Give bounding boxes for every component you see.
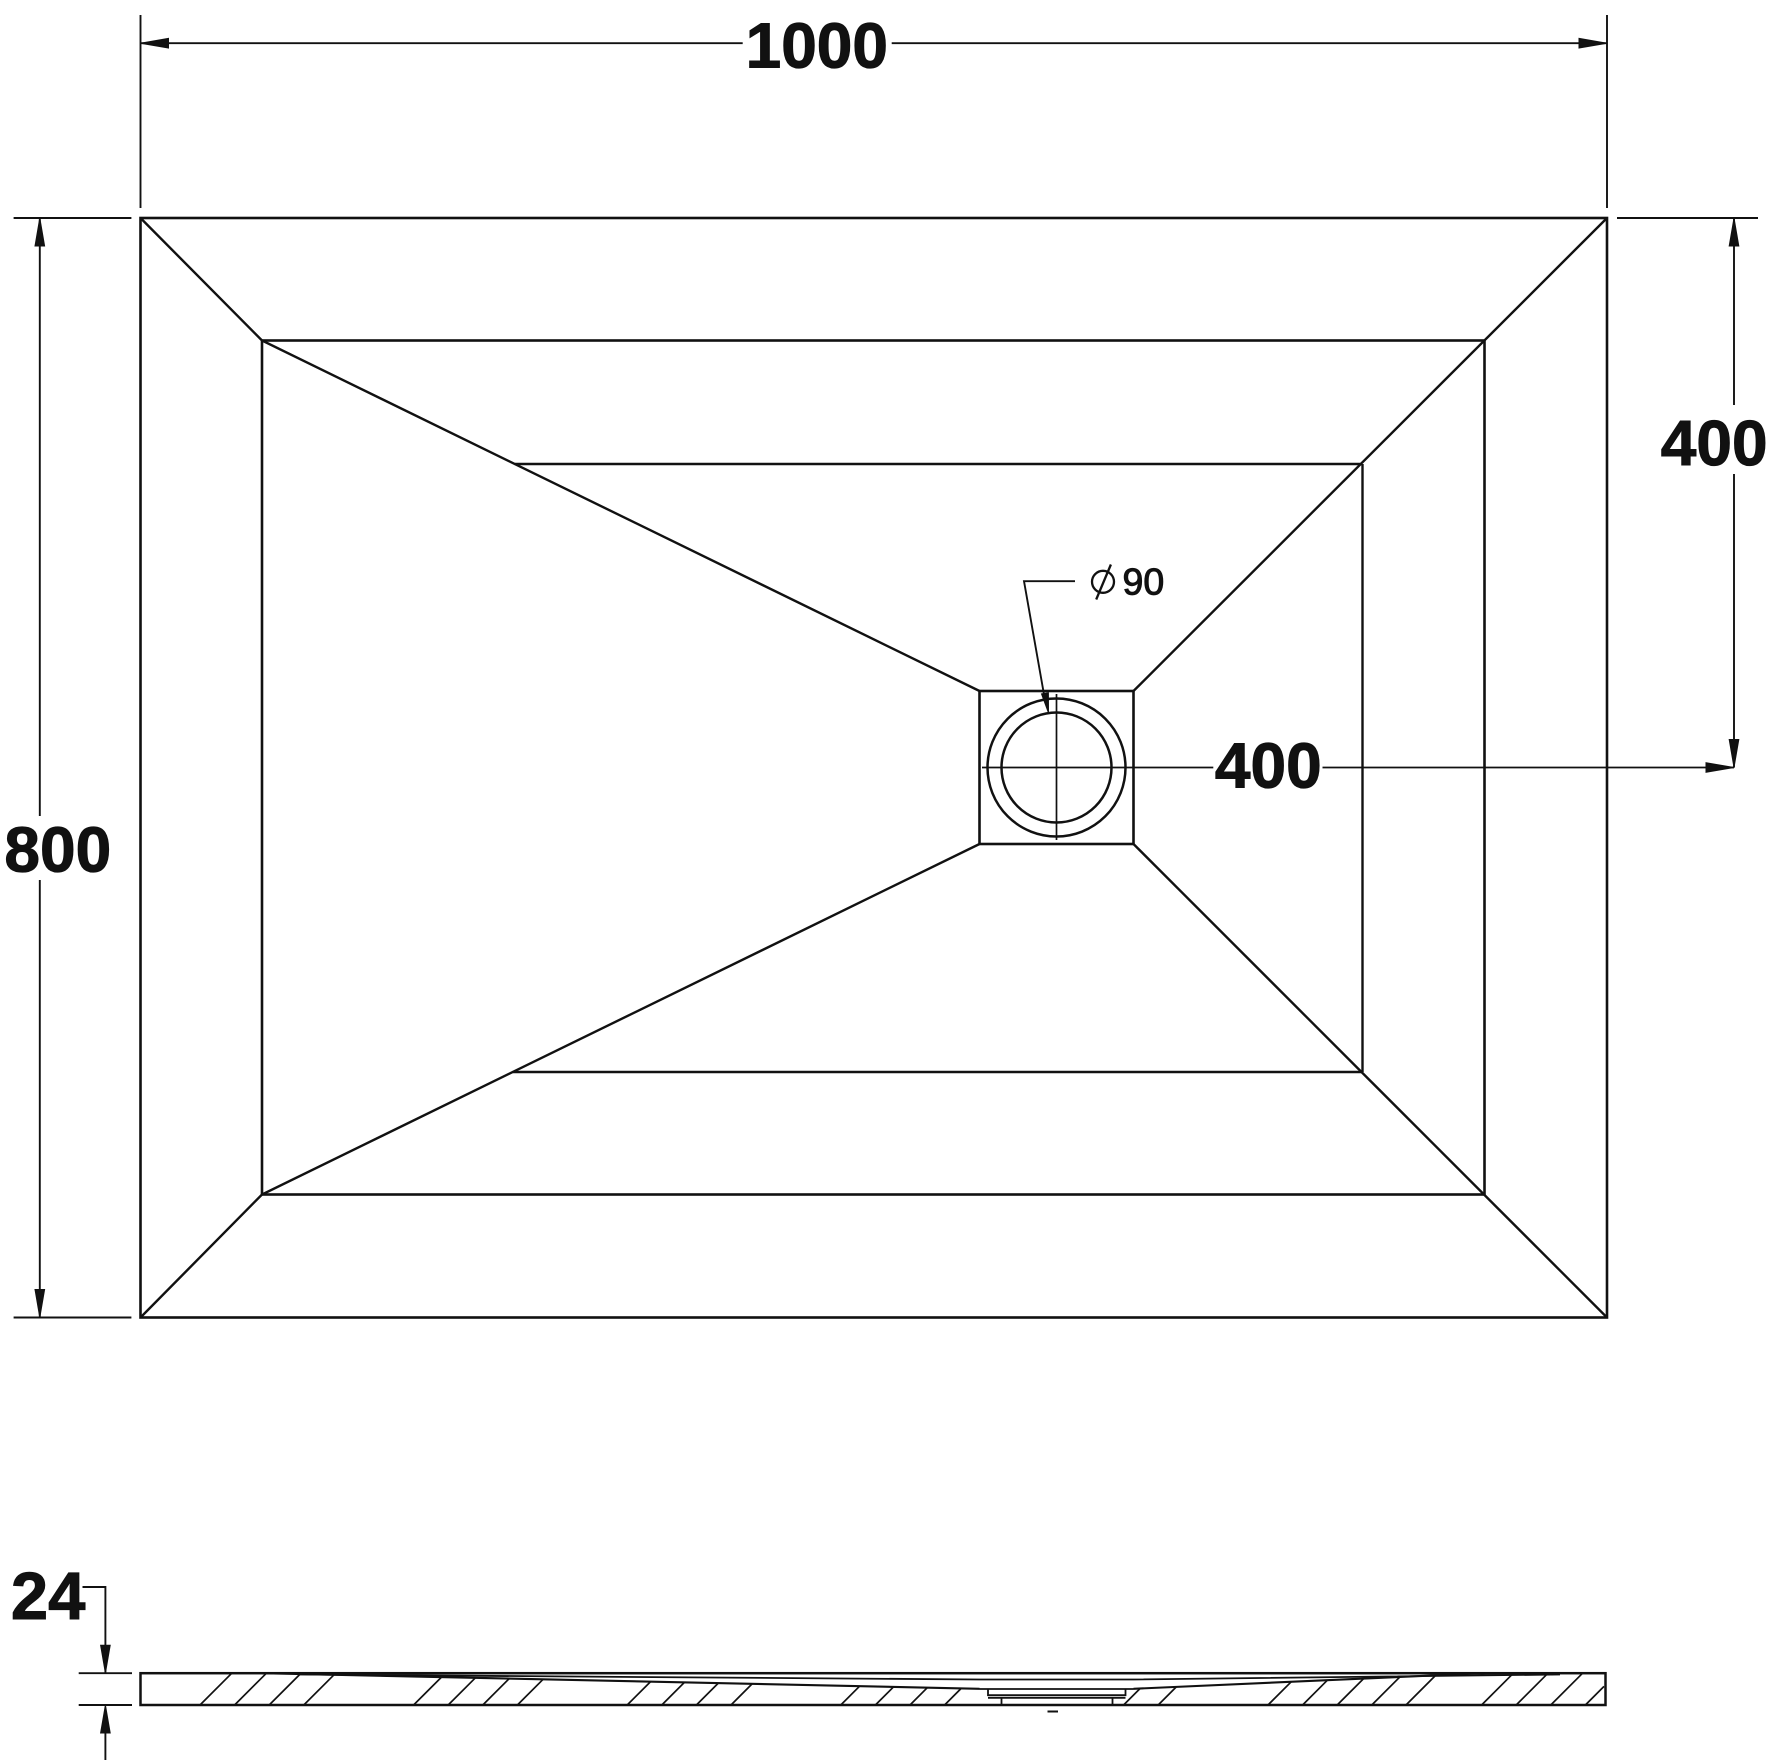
- svg-text:90: 90: [1123, 561, 1165, 603]
- svg-text:400: 400: [1215, 729, 1322, 801]
- svg-text:400: 400: [1661, 407, 1768, 479]
- svg-text:800: 800: [4, 813, 111, 885]
- svg-text:1000: 1000: [746, 10, 888, 82]
- svg-text:24: 24: [11, 1559, 86, 1634]
